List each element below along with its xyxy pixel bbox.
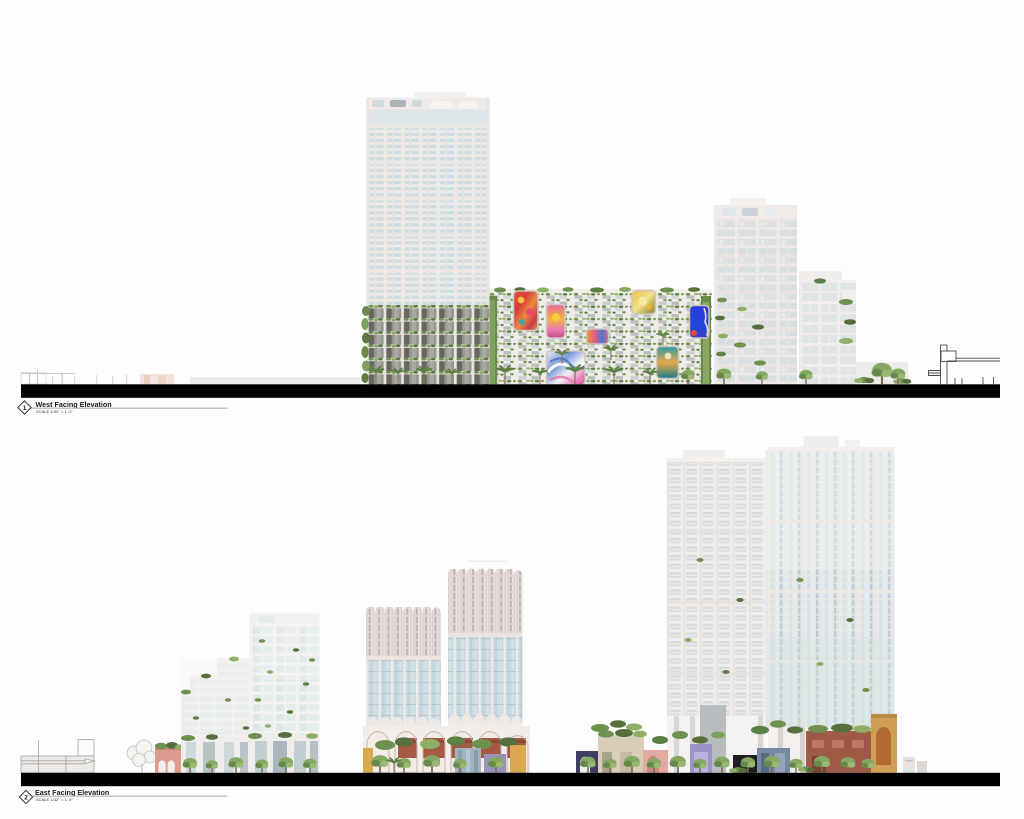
- svg-text:1: 1: [23, 405, 27, 412]
- svg-text:SCALE 1/32" = 1'-0": SCALE 1/32" = 1'-0": [36, 410, 73, 414]
- svg-text:West Facing Elevation: West Facing Elevation: [36, 400, 112, 409]
- svg-text:East Facing Elevation: East Facing Elevation: [35, 788, 109, 797]
- svg-text:2: 2: [24, 795, 28, 802]
- svg-text:SCALE 1/32" = 1'-0": SCALE 1/32" = 1'-0": [36, 798, 73, 802]
